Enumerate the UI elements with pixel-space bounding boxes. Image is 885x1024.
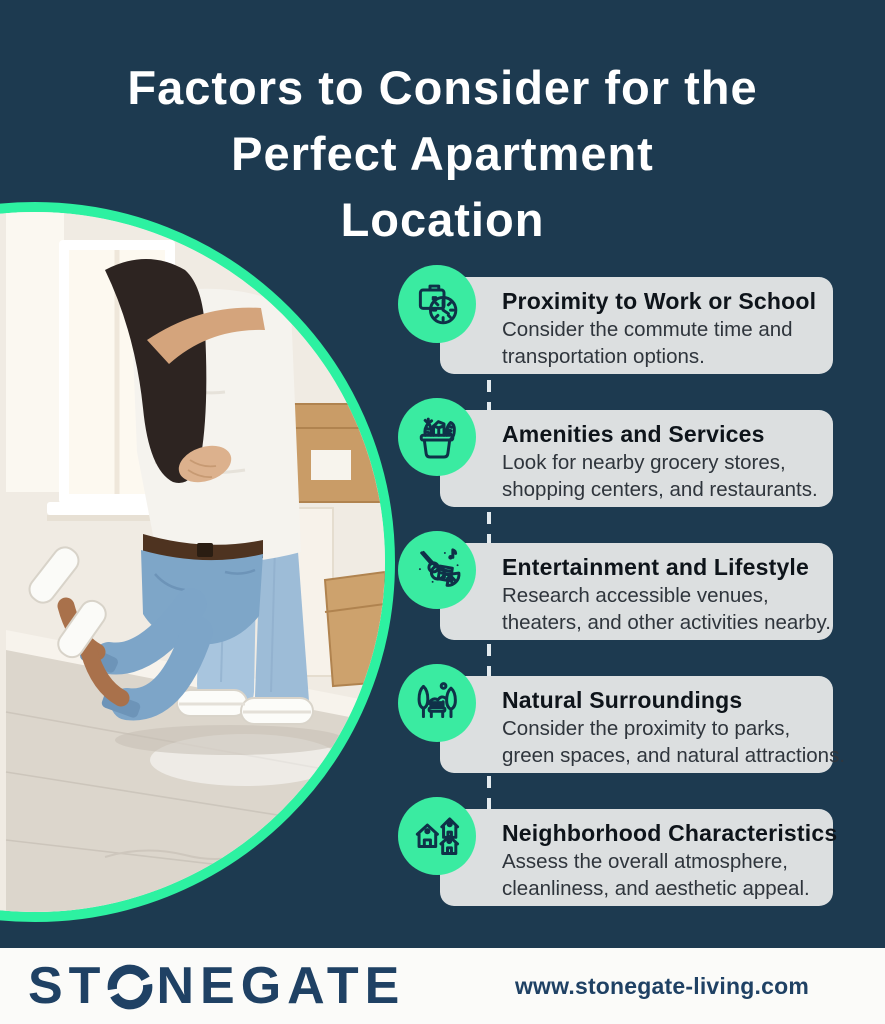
factor-description-line: shopping centers, and restaurants. [502,476,823,503]
factor-description-line: Consider the proximity to parks, [502,715,823,742]
factor-description-line: transportation options. [502,343,823,370]
factor-icon-circle [398,398,476,476]
briefcase-clock-icon [409,276,465,332]
factor-title: Natural Surroundings [502,686,823,715]
factor-list: Proximity to Work or School Consider the… [398,265,834,930]
infographic-poster: Factors to Consider for the Perfect Apar… [0,0,885,1024]
factor-item-amenities: Amenities and Services Look for nearby g… [398,398,834,507]
factor-description-line: green spaces, and natural attractions. [502,742,823,769]
factor-card: Entertainment and Lifestyle Research acc… [440,543,833,640]
factor-icon-circle [398,531,476,609]
factor-card: Natural Surroundings Consider the proxim… [440,676,833,773]
page-title-line-3: Location [341,193,545,246]
neighborhood-houses-icon [409,808,465,864]
factor-item-neighborhood: Neighborhood Characteristics Assess the … [398,797,834,906]
factor-icon-circle [398,664,476,742]
footer: ST NEGATE www.stonegate-living.com [0,948,885,1024]
factor-title: Neighborhood Characteristics [502,819,823,848]
factor-item-natural: Natural Surroundings Consider the proxim… [398,664,834,773]
logo-text-prefix: ST [28,960,106,1012]
factor-icon-circle [398,265,476,343]
factor-description-line: Assess the overall atmosphere, [502,848,823,875]
page-title-line-2: Perfect Apartment [231,127,654,180]
page-title: Factors to Consider for the Perfect Apar… [0,55,885,253]
factor-title: Entertainment and Lifestyle [502,553,823,582]
grocery-basket-icon [409,409,465,465]
factor-item-entertainment: Entertainment and Lifestyle Research acc… [398,531,834,640]
factor-icon-circle [398,797,476,875]
factor-description-line: Research accessible venues, [502,582,823,609]
couple-photo-circle [0,202,395,922]
factor-item-proximity: Proximity to Work or School Consider the… [398,265,834,374]
page-title-line-1: Factors to Consider for the [127,61,757,114]
website-url[interactable]: www.stonegate-living.com [515,973,809,1000]
logo-text-suffix: NEGATE [156,960,405,1012]
cardboard-box [285,404,381,502]
stonegate-logo: ST NEGATE [28,960,405,1012]
stonegate-o-icon [107,964,153,1010]
factor-description-line: Consider the commute time and [502,316,823,343]
factor-description-line: cleanliness, and aesthetic appeal. [502,875,823,902]
factor-card: Proximity to Work or School Consider the… [440,277,833,374]
factor-description-line: Look for nearby grocery stores, [502,449,823,476]
couple-apartment-illustration [0,212,385,912]
factor-title: Amenities and Services [502,420,823,449]
factor-card: Neighborhood Characteristics Assess the … [440,809,833,906]
park-trees-bench-icon [409,675,465,731]
factor-card: Amenities and Services Look for nearby g… [440,410,833,507]
music-entertainment-icon [409,542,465,598]
factor-title: Proximity to Work or School [502,287,823,316]
factor-description-line: theaters, and other activities nearby. [502,609,823,636]
